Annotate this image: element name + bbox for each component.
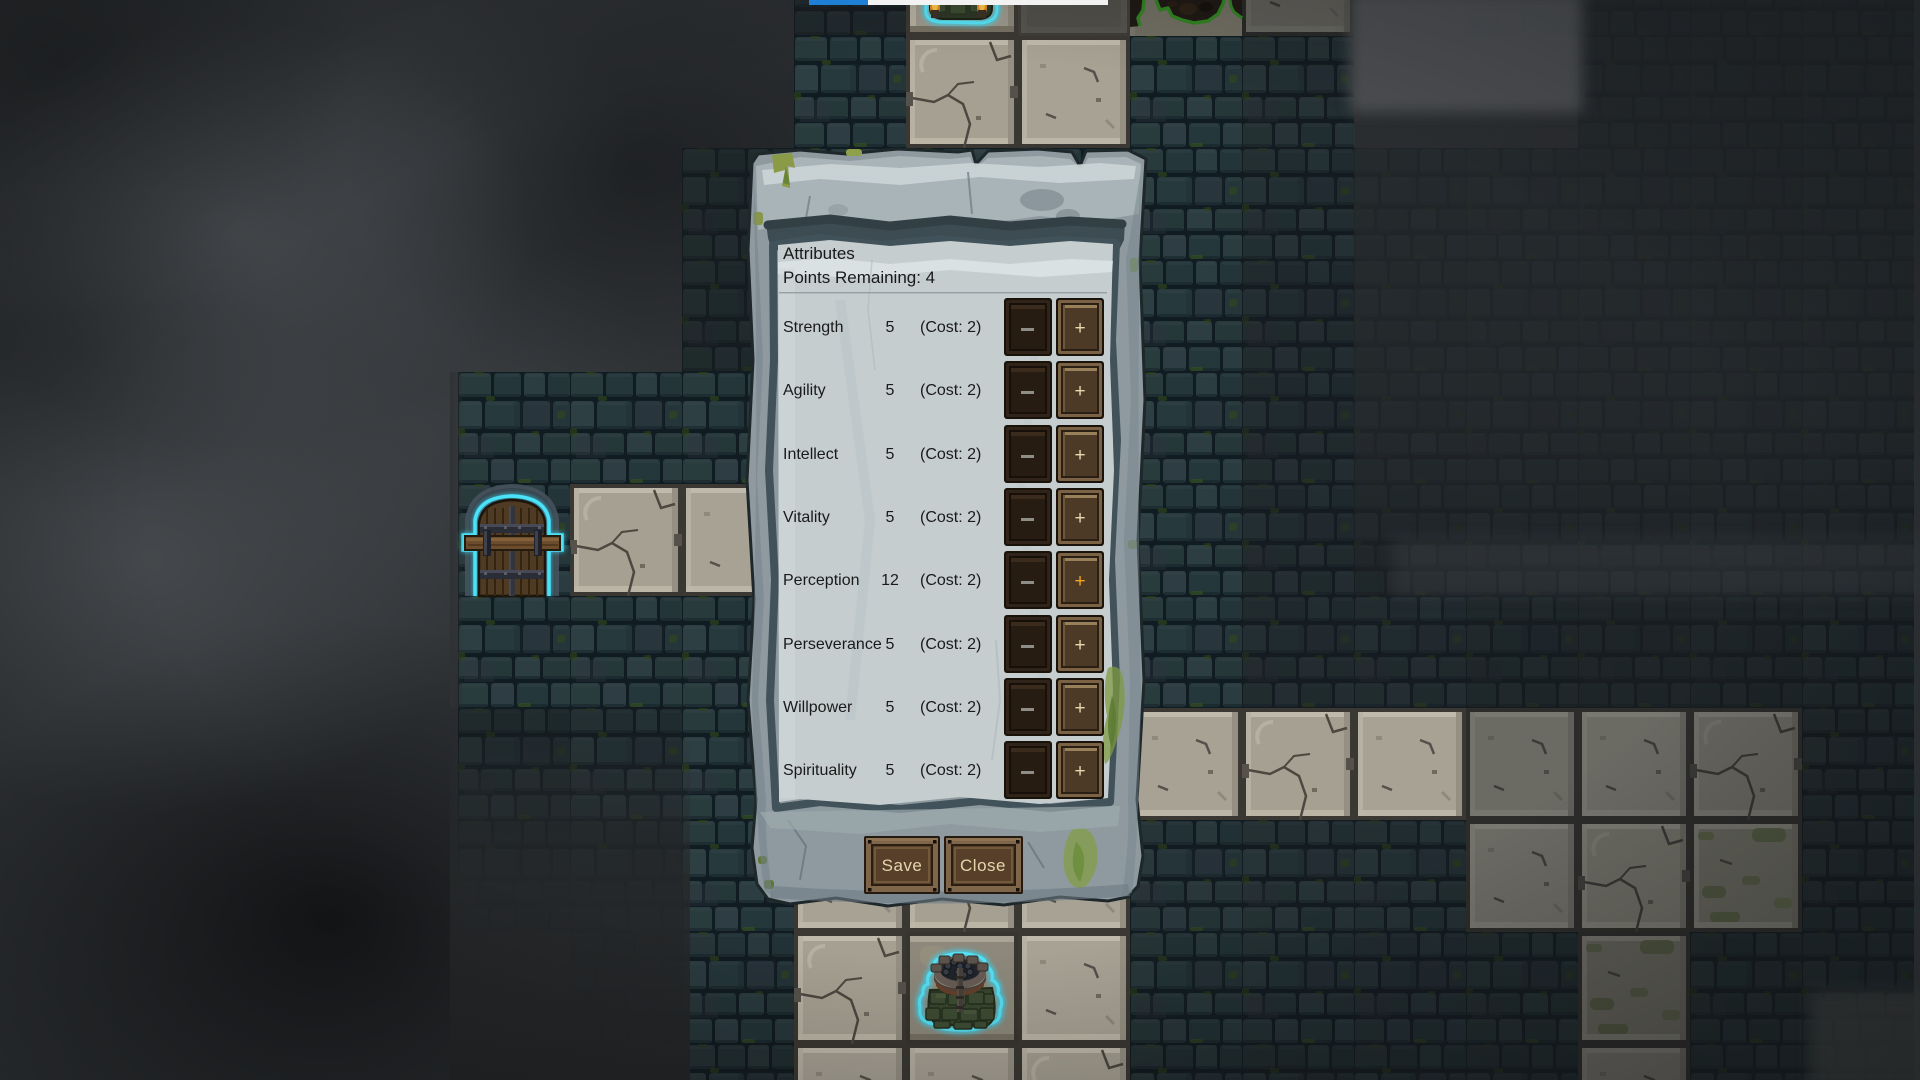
- svg-text:+: +: [1074, 318, 1085, 339]
- svg-text:Strength: Strength: [783, 319, 843, 336]
- svg-text:Attributes: Attributes: [783, 244, 855, 263]
- svg-text:(Cost: 2): (Cost: 2): [920, 762, 981, 779]
- svg-text:Intellect: Intellect: [783, 446, 839, 463]
- svg-text:(Cost: 2): (Cost: 2): [920, 382, 981, 399]
- svg-text:5: 5: [886, 636, 895, 653]
- svg-text:Vitality: Vitality: [783, 509, 830, 526]
- svg-text:5: 5: [886, 762, 895, 779]
- svg-text:5: 5: [886, 446, 895, 463]
- svg-text:Spirituality: Spirituality: [783, 762, 857, 779]
- svg-text:+: +: [1074, 571, 1085, 592]
- svg-text:+: +: [1074, 761, 1085, 782]
- svg-text:Agility: Agility: [783, 382, 826, 399]
- svg-text:5: 5: [886, 319, 895, 336]
- svg-text:+: +: [1074, 381, 1085, 402]
- svg-text:5: 5: [886, 382, 895, 399]
- svg-text:5: 5: [886, 699, 895, 716]
- svg-text:Save: Save: [882, 856, 923, 875]
- svg-text:(Cost: 2): (Cost: 2): [920, 446, 981, 463]
- svg-text:12: 12: [881, 572, 899, 589]
- svg-text:Close: Close: [960, 856, 1006, 875]
- svg-text:Perception: Perception: [783, 572, 860, 589]
- svg-text:(Cost: 2): (Cost: 2): [920, 509, 981, 526]
- svg-text:+: +: [1074, 445, 1085, 466]
- svg-text:Perseverance: Perseverance: [783, 636, 882, 653]
- svg-text:+: +: [1074, 698, 1085, 719]
- svg-text:Willpower: Willpower: [783, 699, 853, 716]
- svg-text:+: +: [1074, 508, 1085, 529]
- svg-text:(Cost: 2): (Cost: 2): [920, 572, 981, 589]
- svg-text:5: 5: [886, 509, 895, 526]
- svg-text:Points Remaining: 4: Points Remaining: 4: [783, 268, 935, 287]
- svg-text:(Cost: 2): (Cost: 2): [920, 699, 981, 716]
- svg-text:(Cost: 2): (Cost: 2): [920, 636, 981, 653]
- svg-text:+: +: [1074, 635, 1085, 656]
- svg-text:(Cost: 2): (Cost: 2): [920, 319, 981, 336]
